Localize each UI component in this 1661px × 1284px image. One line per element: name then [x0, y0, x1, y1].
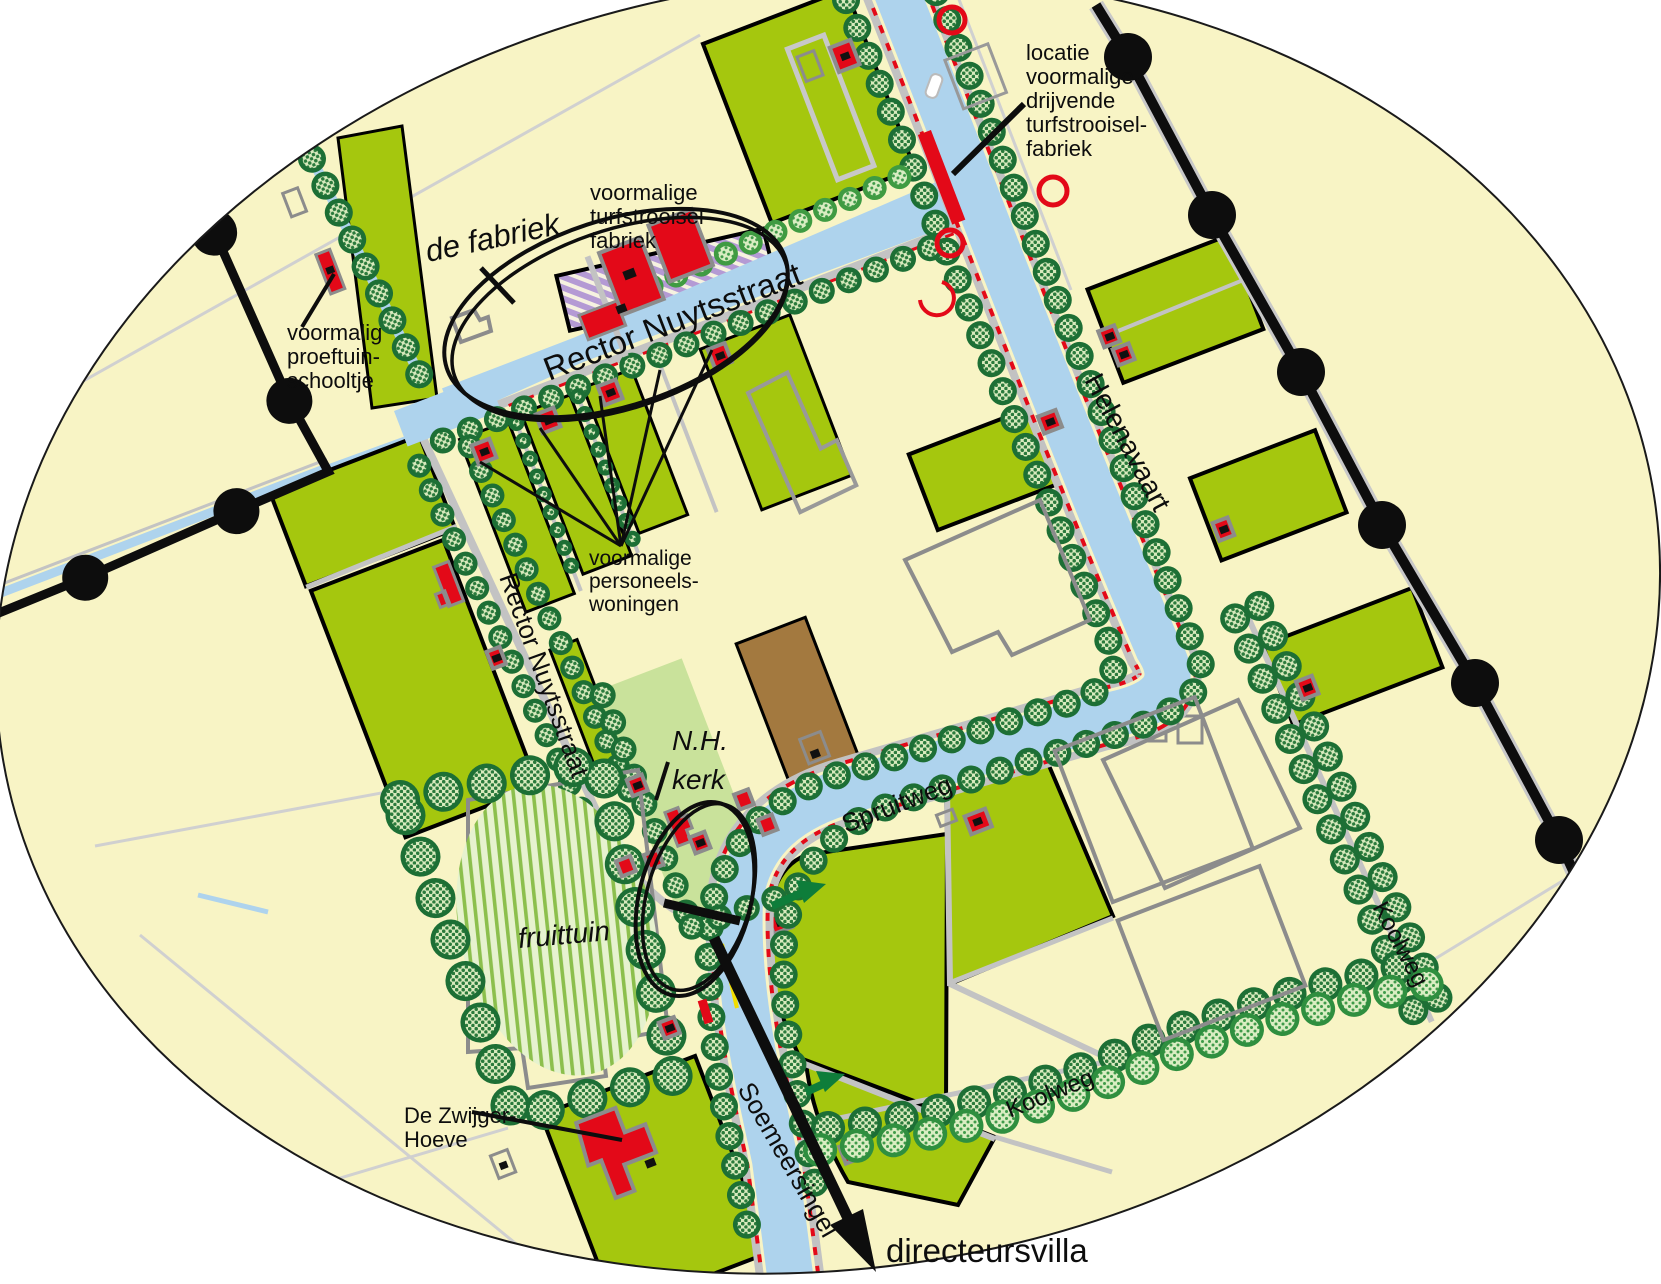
svg-text:voormalig: voormalig — [287, 320, 382, 345]
svg-text:turfstrooisel-: turfstrooisel- — [1026, 112, 1147, 137]
svg-text:proeftuin-: proeftuin- — [287, 344, 380, 369]
svg-text:turfstrooisel-: turfstrooisel- — [590, 204, 711, 229]
svg-text:kerk: kerk — [672, 764, 727, 795]
svg-text:Hoeve: Hoeve — [404, 1127, 468, 1152]
svg-text:schooltje: schooltje — [287, 368, 374, 393]
svg-text:voormalige: voormalige — [590, 180, 698, 205]
svg-text:voormalige: voormalige — [589, 547, 692, 570]
svg-text:drijvende: drijvende — [1026, 88, 1115, 113]
svg-text:De Zwijger-: De Zwijger- — [404, 1103, 516, 1128]
svg-text:locatie: locatie — [1026, 40, 1090, 65]
svg-text:voormalige: voormalige — [1026, 64, 1134, 89]
svg-text:directeursvilla: directeursvilla — [886, 1232, 1088, 1269]
svg-text:woningen: woningen — [588, 593, 679, 616]
svg-text:fabriek: fabriek — [1026, 136, 1093, 161]
svg-text:personeels-: personeels- — [589, 570, 699, 593]
svg-text:fabriek: fabriek — [590, 228, 657, 253]
svg-text:N.H.: N.H. — [672, 725, 728, 756]
